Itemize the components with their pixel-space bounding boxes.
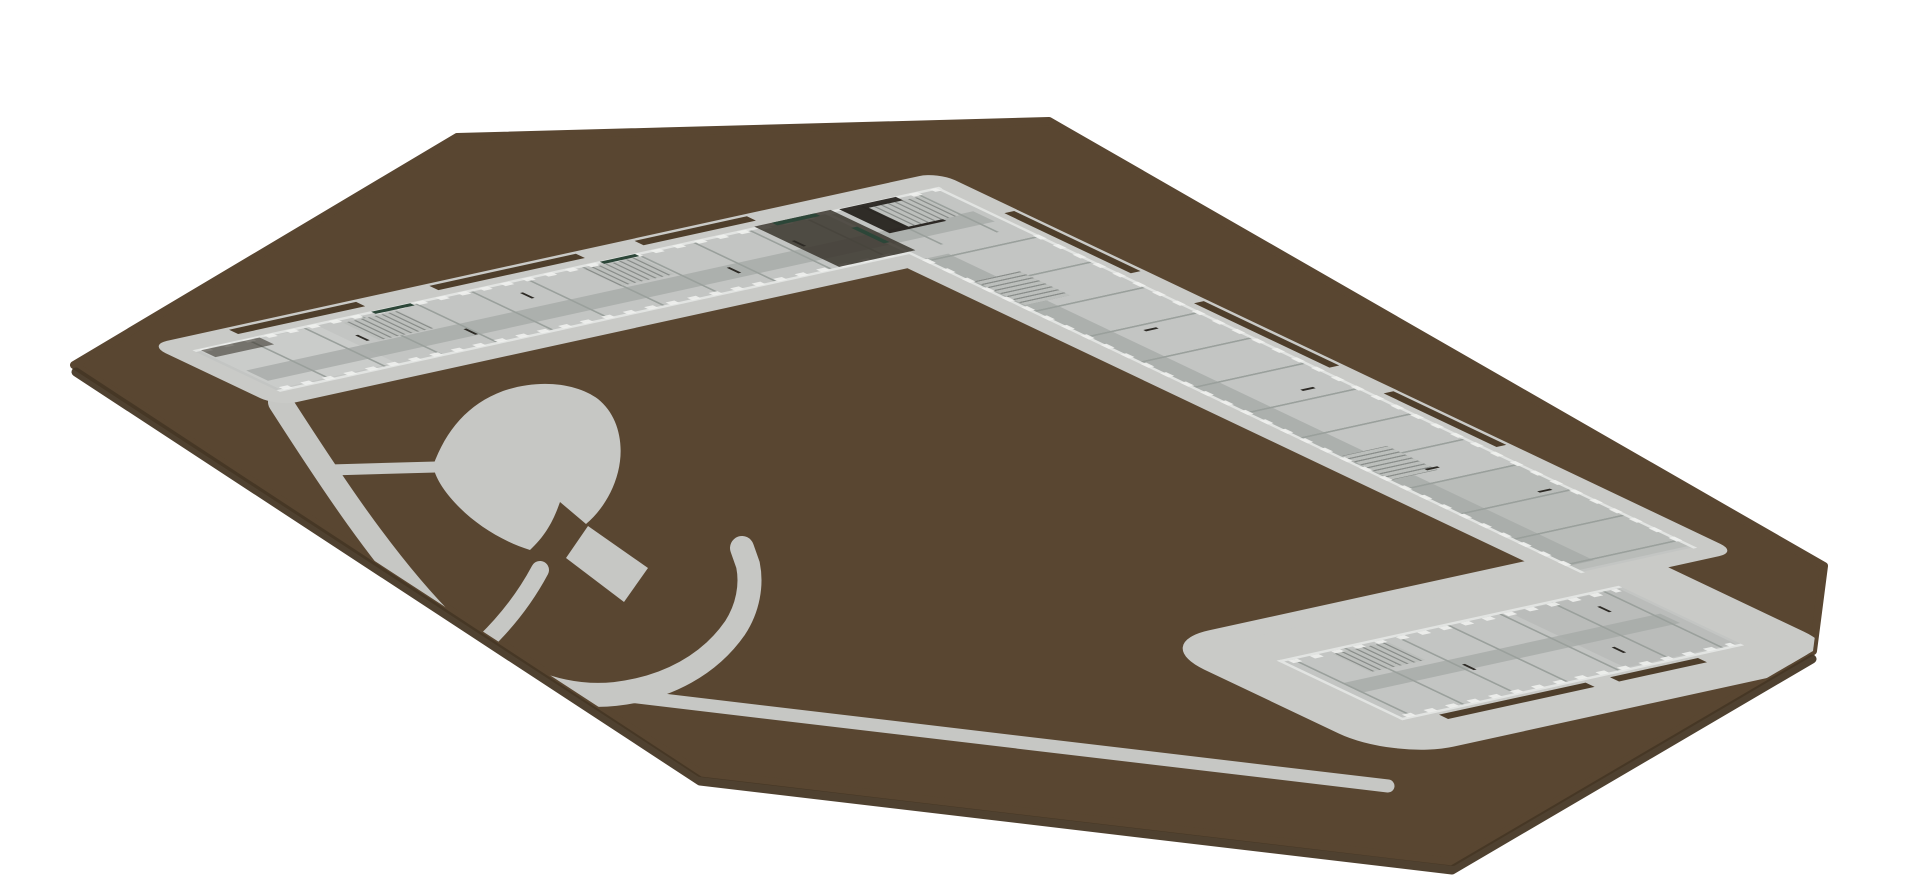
model-viewport[interactable]	[0, 0, 1920, 880]
pond-connector-path	[330, 467, 436, 470]
